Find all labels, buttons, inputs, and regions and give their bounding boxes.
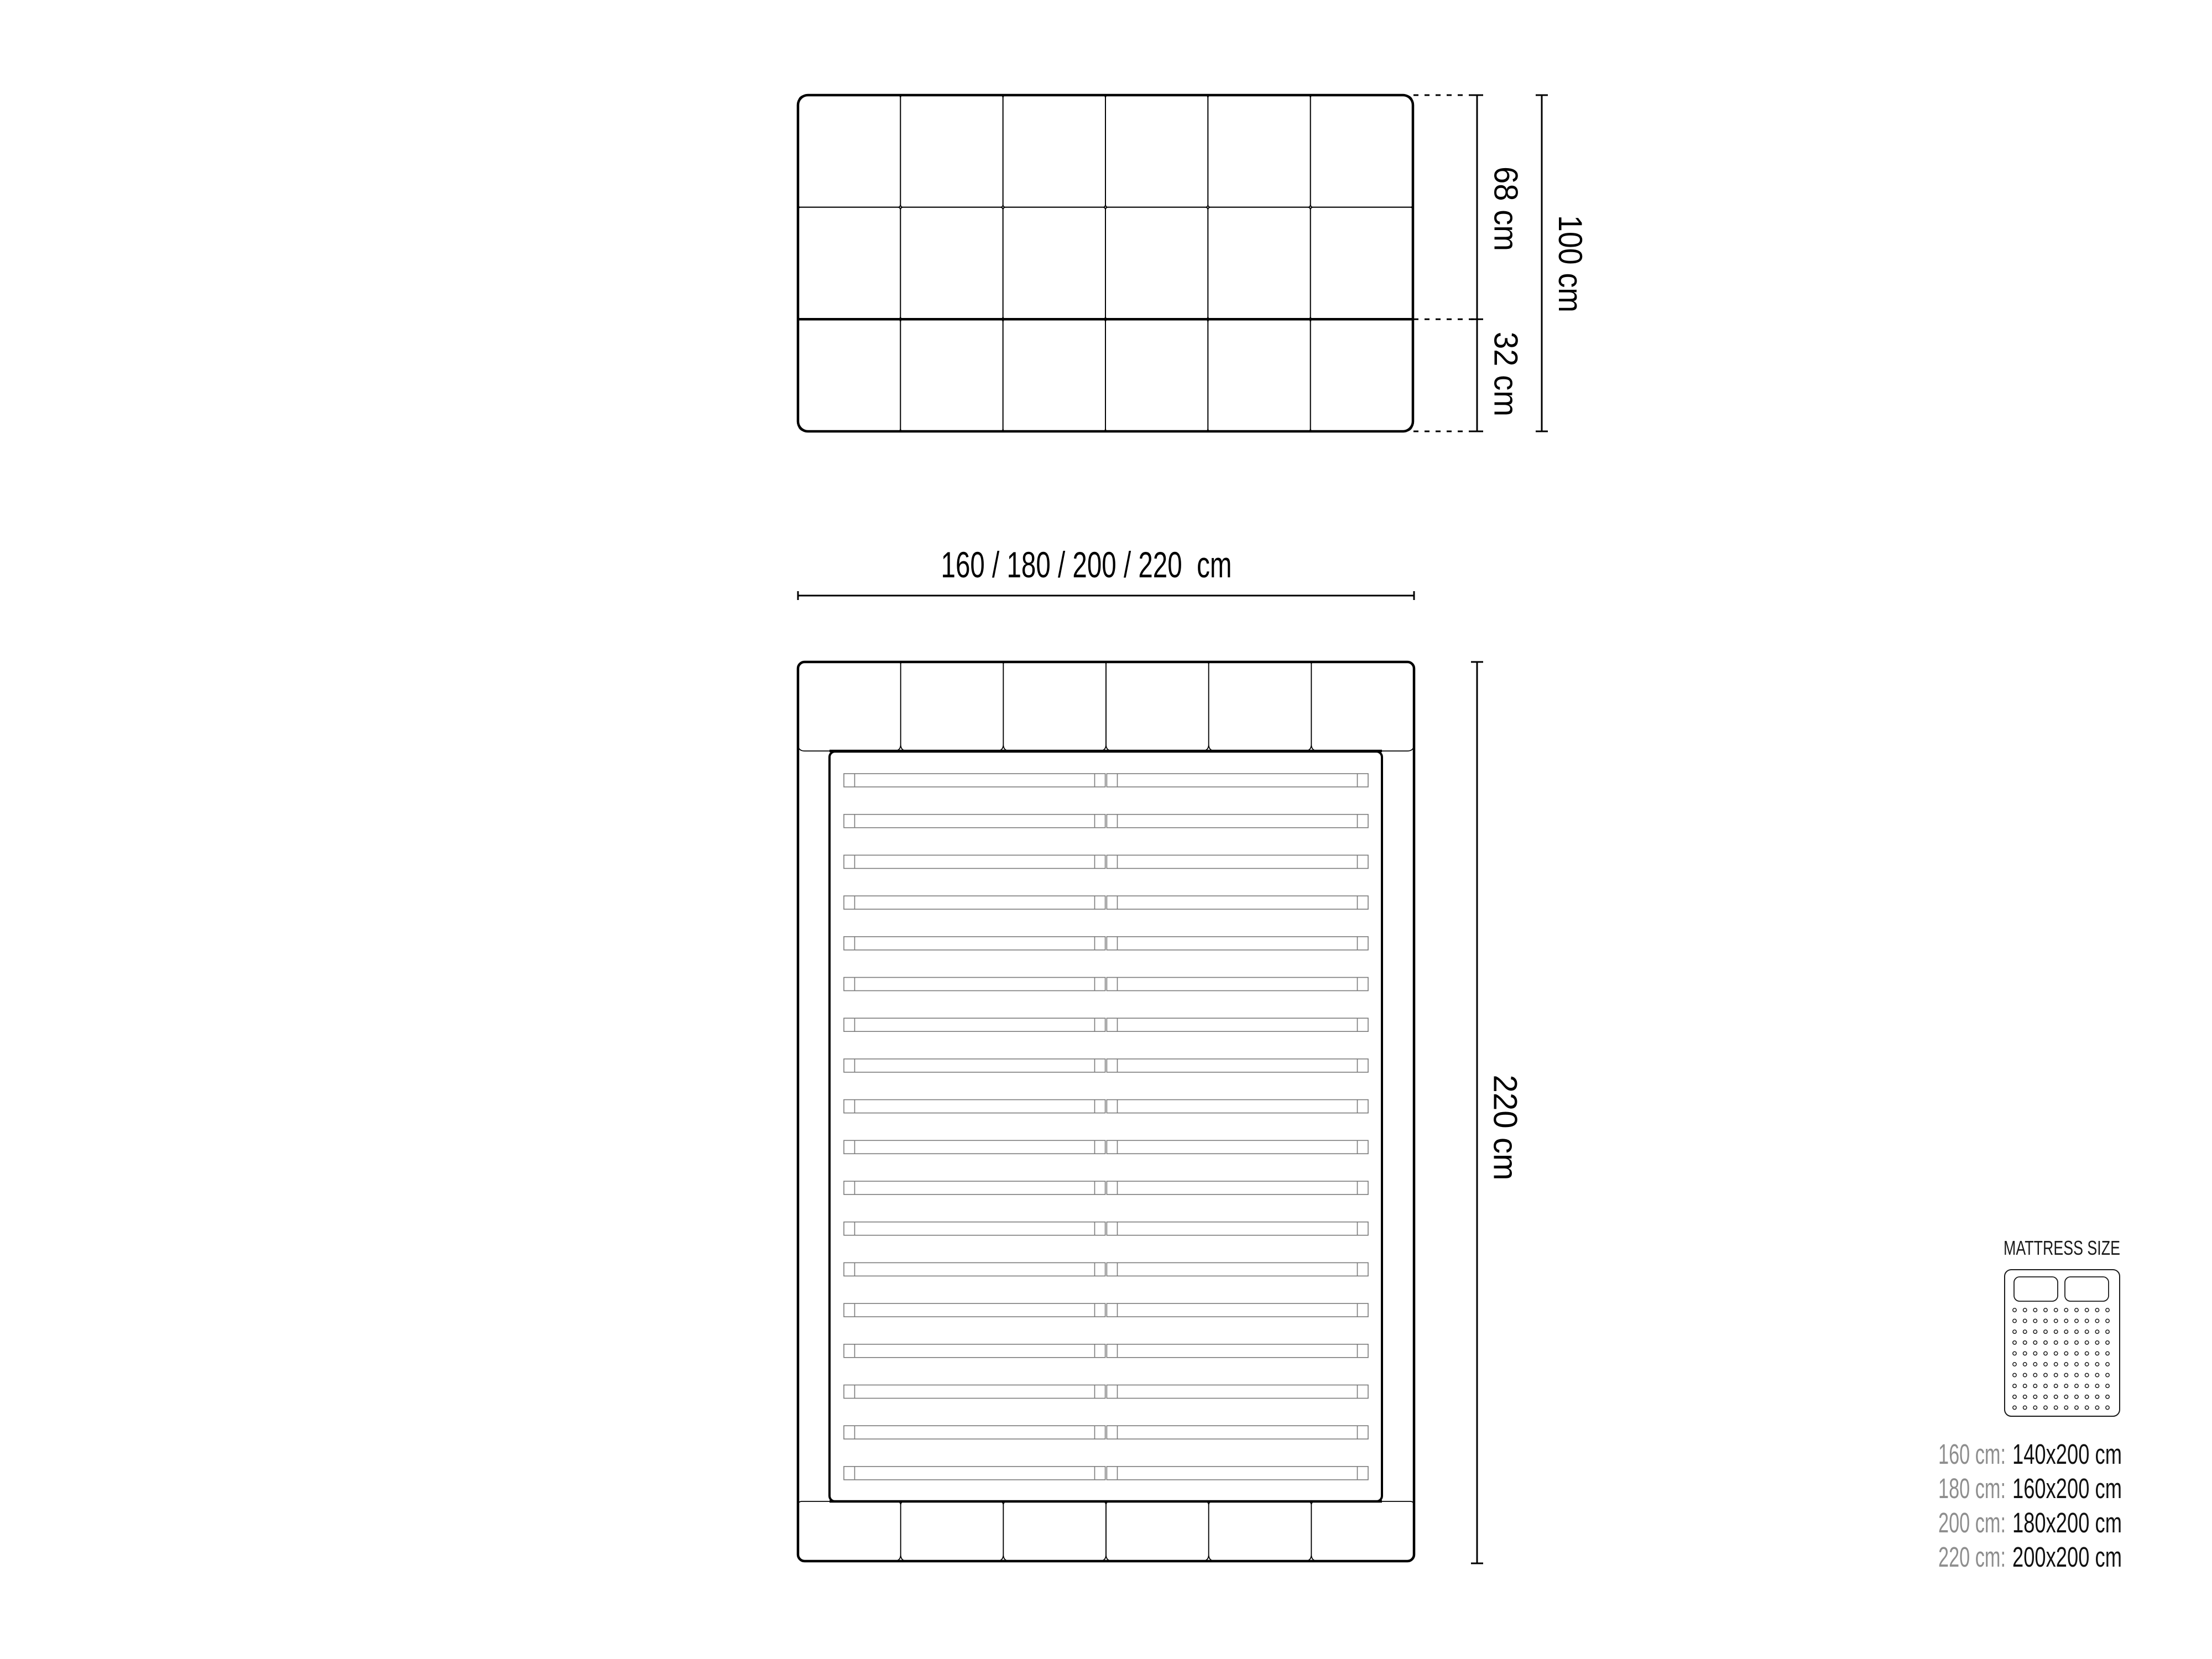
svg-text:100 cm: 100 cm xyxy=(1552,215,1589,312)
svg-text:32 cm: 32 cm xyxy=(1488,332,1525,416)
svg-text:140x200 cm: 140x200 cm xyxy=(2012,1438,2122,1470)
svg-text:180 cm:: 180 cm: xyxy=(1938,1473,2006,1504)
svg-text:160 cm:: 160 cm: xyxy=(1938,1438,2006,1470)
svg-text:160x200 cm: 160x200 cm xyxy=(2012,1473,2122,1504)
svg-text:160 / 180 / 200 / 220 cm: 160 / 180 / 200 / 220 cm xyxy=(941,544,1232,585)
svg-text:200 cm:: 200 cm: xyxy=(1938,1507,2006,1538)
svg-text:200x200 cm: 200x200 cm xyxy=(2012,1541,2122,1573)
svg-text:220 cm:: 220 cm: xyxy=(1938,1541,2006,1573)
svg-text:220 cm: 220 cm xyxy=(1487,1075,1524,1181)
svg-text:MATTRESS SIZE: MATTRESS SIZE xyxy=(2004,1237,2120,1259)
svg-text:68 cm: 68 cm xyxy=(1488,166,1525,251)
svg-text:180x200 cm: 180x200 cm xyxy=(2012,1507,2122,1538)
